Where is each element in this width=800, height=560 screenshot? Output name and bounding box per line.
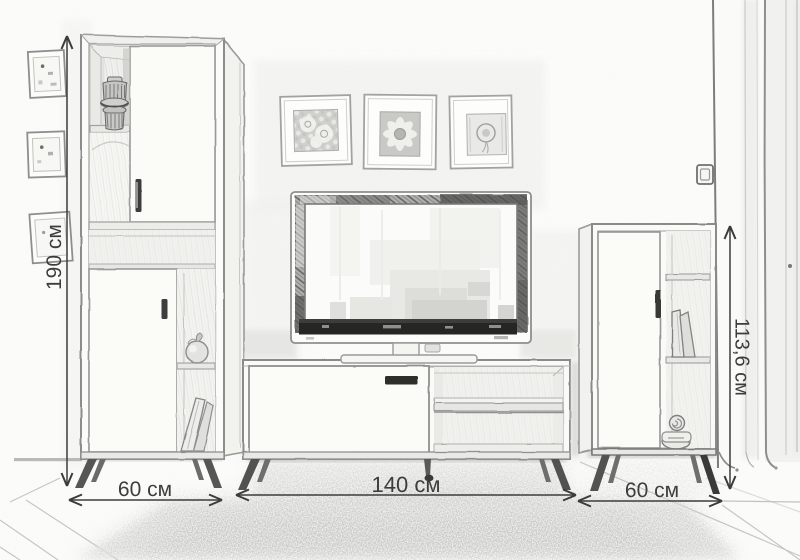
svg-text:60 см: 60 см bbox=[625, 479, 679, 502]
svg-text:113,6 см: 113,6 см bbox=[731, 318, 753, 396]
svg-text:190 см: 190 см bbox=[43, 224, 66, 290]
svg-text:140 см: 140 см bbox=[372, 472, 441, 497]
svg-text:60 см: 60 см bbox=[118, 478, 172, 501]
